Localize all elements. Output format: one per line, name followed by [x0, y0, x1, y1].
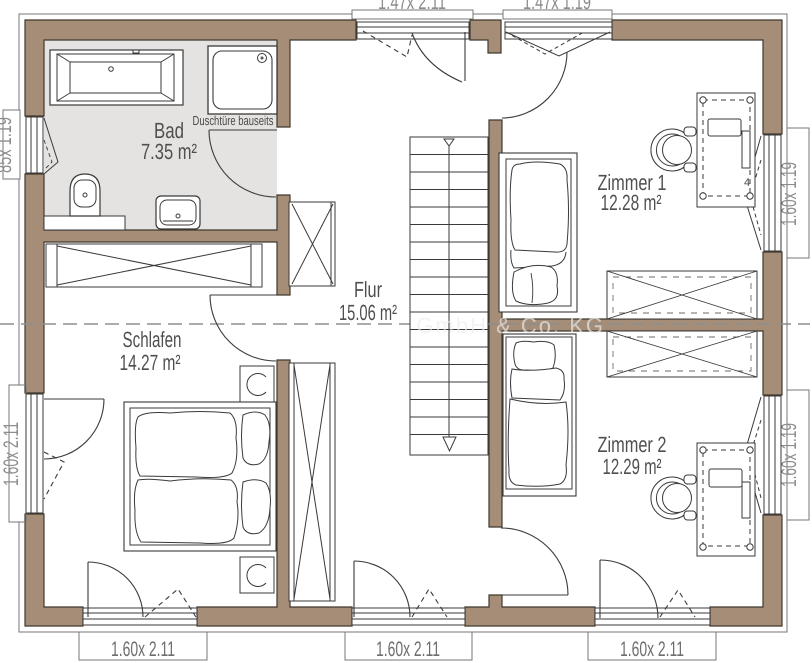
svg-text:4: 4	[744, 177, 750, 189]
svg-text:1.47x 1.19: 1.47x 1.19	[523, 0, 591, 14]
svg-text:1.60x 2.11: 1.60x 2.11	[620, 638, 684, 661]
svg-text:14.27 m²: 14.27 m²	[120, 350, 181, 375]
svg-text:85x 1.19: 85x 1.19	[0, 117, 16, 173]
svg-text:1.60x 2.11: 1.60x 2.11	[111, 638, 175, 661]
svg-text:7.35 m²: 7.35 m²	[141, 139, 197, 164]
svg-text:Schlafen: Schlafen	[123, 327, 182, 352]
svg-text:1.60x 2.11: 1.60x 2.11	[0, 422, 23, 486]
svg-text:GmbH & Co. KG: GmbH & Co. KG	[416, 313, 605, 338]
svg-text:12.29 m²: 12.29 m²	[603, 454, 662, 479]
svg-text:Duschtüre bauseits: Duschtüre bauseits	[193, 113, 274, 128]
svg-text:12.28 m²: 12.28 m²	[601, 190, 662, 215]
svg-text:1.47x 2.11: 1.47x 2.11	[378, 0, 446, 14]
svg-text:15.06 m²: 15.06 m²	[339, 300, 397, 325]
svg-text:Flur: Flur	[354, 277, 382, 302]
svg-text:1.60x 2.11: 1.60x 2.11	[376, 638, 440, 661]
